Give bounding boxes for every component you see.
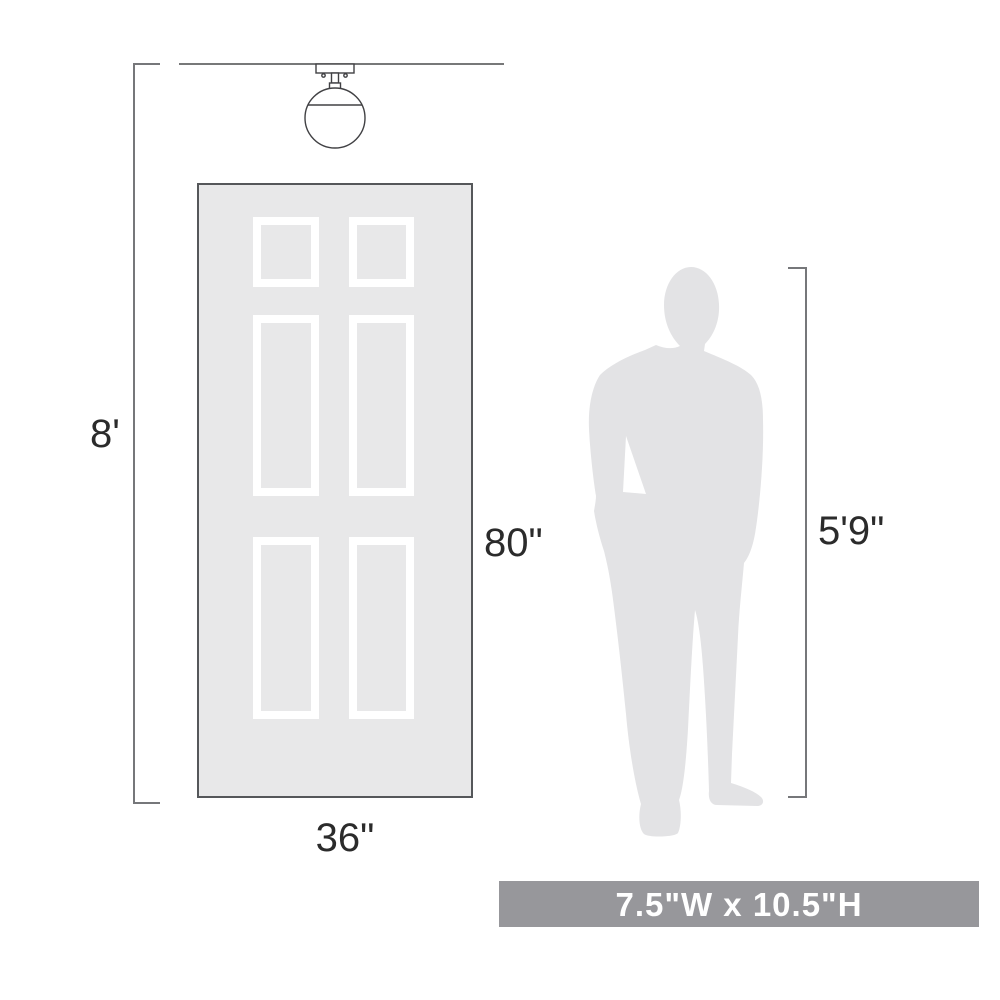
size-banner: 7.5"W x 10.5"H: [499, 881, 979, 927]
flush-mount-globe-light-icon: [305, 64, 365, 148]
fixture-screw-right: [344, 74, 347, 77]
product-dimension-diagram: 8' 80" 36" 5'9" 7.5"W x 10.5"H: [0, 0, 1000, 1000]
diagram-artwork: [0, 0, 1000, 1000]
fixture-globe: [305, 88, 365, 148]
six-panel-door: [197, 183, 473, 798]
fixture-screw-left: [322, 74, 325, 77]
door-panel: [253, 315, 319, 496]
fixture-stem: [332, 73, 339, 83]
door-height-label: 80": [484, 523, 543, 563]
door-panel: [253, 537, 319, 719]
door-panel: [349, 315, 414, 496]
door-width-label: 36": [280, 818, 410, 858]
door-panel: [349, 217, 414, 287]
person-height-label: 5'9": [818, 511, 884, 551]
person-silhouette: [589, 267, 763, 837]
ceiling-height-dimension-line: [134, 64, 160, 803]
door-panel: [253, 217, 319, 287]
person-silhouette-body: [589, 267, 763, 837]
door-panel: [349, 537, 414, 719]
size-banner-label: 7.5"W x 10.5"H: [615, 888, 862, 921]
fixture-canopy: [316, 64, 354, 73]
person-height-dimension-line: [788, 268, 806, 797]
ceiling-height-label: 8': [75, 414, 135, 454]
